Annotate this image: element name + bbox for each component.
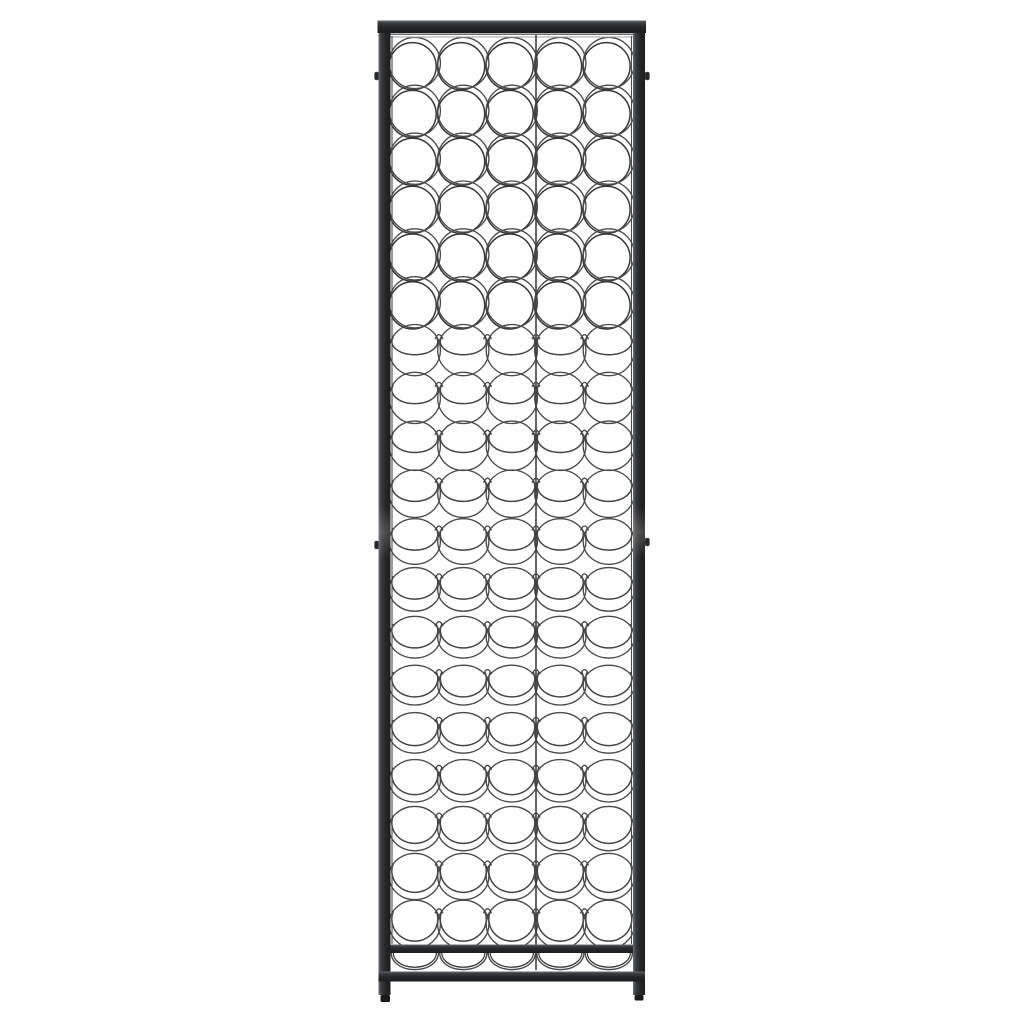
product-photo [0,0,1024,1024]
wine-rack-svg [0,0,1024,1024]
wall-mount-tab [645,72,650,80]
foot [381,995,391,1002]
post-joint-sleeve [379,506,391,558]
wall-mount-tab [375,72,380,80]
shelf-bar [391,945,634,954]
bottom-bar [379,972,646,982]
wine-rack-image [0,0,1024,1024]
wall-mount-tab [375,541,380,549]
top-cap [378,21,647,34]
foot [635,995,644,1001]
wall-mount-tab [645,538,650,546]
post-joint-sleeve [633,506,645,558]
white-backdrop [0,0,1024,1024]
